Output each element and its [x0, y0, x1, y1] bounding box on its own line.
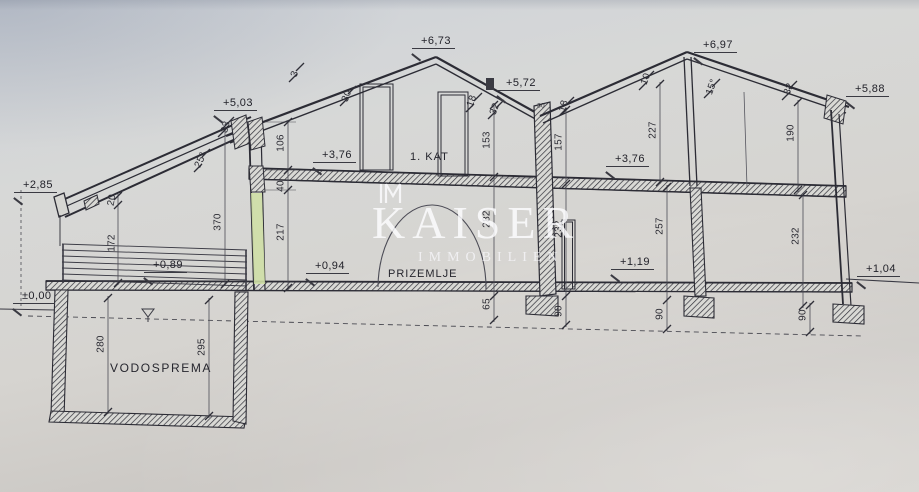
dimension-label: 40: [276, 180, 287, 192]
dimension-label: 190: [786, 124, 797, 142]
dimension-label: 90: [655, 308, 666, 320]
dimension-label: 227: [648, 121, 659, 139]
elevation-label: +2,85: [14, 179, 57, 193]
water-level-icon: [142, 309, 154, 322]
dimension-label: 172: [107, 234, 118, 252]
dimension-label: 280: [96, 335, 107, 353]
elevation-label: +0,89: [144, 259, 187, 273]
dimension-label: 153: [482, 131, 493, 149]
dimension-label: 295: [197, 338, 208, 356]
dimension-label: 30: [537, 103, 545, 110]
ground-lines: [0, 190, 919, 336]
dimension-label: 282: [482, 210, 493, 228]
dimension-label: 232: [791, 227, 802, 245]
dimension-label: 370: [213, 213, 224, 231]
attic-door-1: [360, 84, 393, 170]
room-label-1kat: 1. KAT: [410, 151, 449, 163]
vodosprema-walls: [49, 290, 248, 428]
elevation-label: +1,04: [857, 263, 900, 277]
elevation-label: +3,76: [606, 153, 649, 167]
dimension-label: 90: [554, 305, 565, 317]
room-label-vodosprema: VODOSPREMA: [110, 361, 212, 375]
attic-door-2: [438, 92, 468, 176]
dimension-lines: [108, 82, 810, 418]
dimension-label: 257: [655, 217, 666, 235]
elevation-label: +3,76: [313, 149, 356, 163]
dimension-label: 157: [554, 133, 565, 151]
elevation-label: +1,19: [611, 256, 654, 270]
dimension-label: 90: [798, 309, 809, 321]
roof-vent: [486, 78, 494, 90]
elevation-label: +6,73: [412, 35, 455, 49]
elevation-label: +5,88: [846, 83, 889, 97]
dimension-label: 217: [276, 223, 287, 241]
photographed-blueprint: 37021740106172203325°3301832153282653018…: [0, 0, 919, 492]
elevation-label: +6,97: [694, 39, 737, 53]
dimension-label: 20: [106, 193, 119, 206]
dimension-label: 106: [276, 134, 287, 152]
elevation-label: ±0,00: [13, 290, 55, 304]
dimension-label: 65: [482, 298, 493, 310]
dimension-label: 232: [554, 220, 565, 238]
elevation-label: +5,72: [497, 77, 540, 91]
central-wall: [534, 102, 556, 296]
elevation-label: +5,03: [214, 97, 257, 111]
section-drawing-svg: [0, 0, 919, 492]
elevation-label: +0,94: [306, 260, 349, 274]
room-label-prizemlje: PRIZEMLJE: [388, 268, 458, 280]
